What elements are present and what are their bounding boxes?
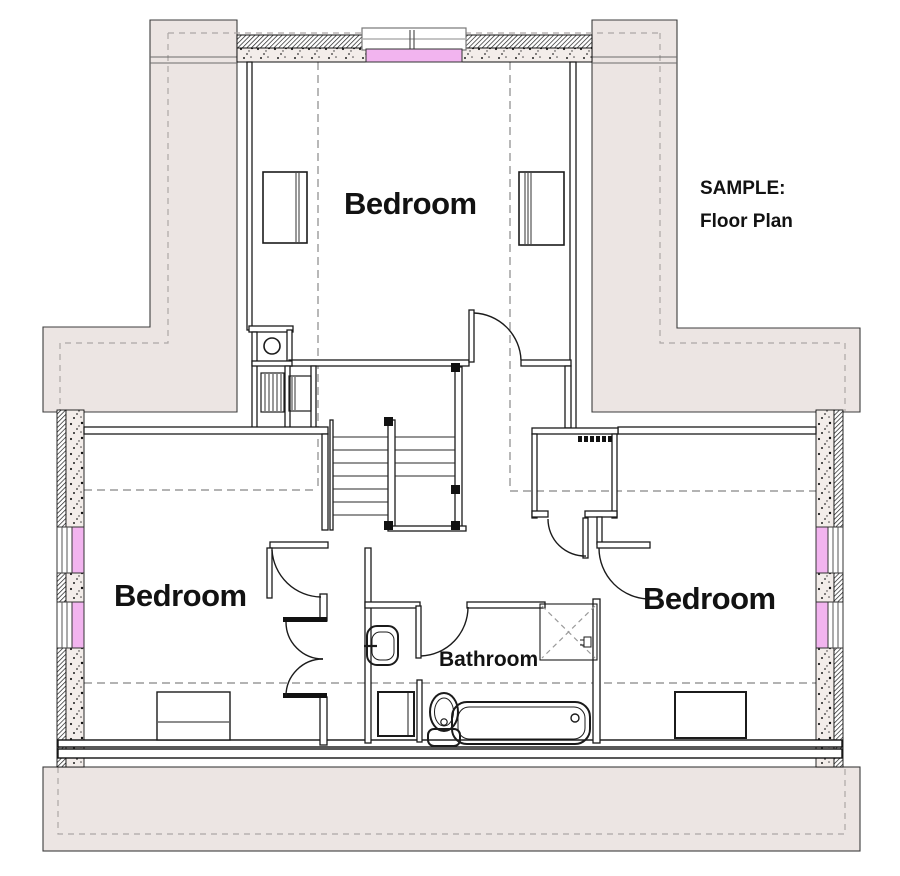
- dresser-top-right: [519, 172, 564, 245]
- wall-bathroom-stub: [417, 680, 422, 742]
- floor-plan-drawing: [0, 0, 900, 876]
- left-wall-hatch: [57, 410, 66, 767]
- dresser-left-bedroom: [157, 692, 230, 740]
- wall-utility-divider: [252, 361, 292, 366]
- wall-left-bedroom-stub-south: [320, 697, 327, 745]
- door-leaf-left-bedroom: [267, 548, 272, 598]
- bathtub-icon: [452, 702, 590, 744]
- stair-stringer-left: [330, 420, 333, 530]
- bottom-wall-outer: [58, 749, 842, 758]
- wall-stair-west: [322, 434, 328, 530]
- wall-bathroom-north-a: [365, 602, 420, 608]
- double-door-arc-upper: [286, 622, 323, 659]
- sample-annotation: SAMPLE: Floor Plan: [700, 172, 793, 238]
- wall-top-bedroom-south-b: [289, 360, 469, 366]
- wall-top-bedroom-south-c: [521, 360, 571, 366]
- right-wall-hatch: [834, 410, 843, 767]
- double-door-leaf-lower: [283, 693, 327, 698]
- wall-top-bedroom-west: [247, 62, 252, 330]
- door-arc-left-bedroom: [272, 550, 321, 597]
- wall-north-left: [84, 427, 328, 434]
- wall-north-right: [618, 427, 816, 434]
- wall-closet-north: [532, 428, 618, 434]
- wall-closet-west: [532, 434, 537, 518]
- roof-shade-bottom: [43, 767, 860, 851]
- window-right-upper: [816, 527, 843, 573]
- room-label-bedroom-left: Bedroom: [114, 578, 247, 614]
- wall-closet-east: [612, 434, 617, 518]
- room-label-bedroom-right: Bedroom: [643, 581, 776, 617]
- wall-bathroom-north-b: [467, 602, 545, 608]
- stair-rail-right: [455, 367, 462, 527]
- door-leaf-bathroom: [416, 606, 421, 658]
- desk-right-bedroom: [675, 692, 746, 738]
- right-wall-speckle: [816, 410, 834, 767]
- wall-left-bedroom-stub-mid: [320, 594, 327, 621]
- closet-shelf-marks: [578, 436, 612, 442]
- radiator-icon: [261, 373, 284, 412]
- stairs: [330, 363, 466, 531]
- window-left-lower: [57, 602, 84, 648]
- floor-plan: Bedroom Bedroom Bedroom Bathroom SAMPLE:…: [0, 0, 900, 876]
- dresser-top-left: [263, 172, 307, 243]
- wall-utility-east: [311, 366, 316, 428]
- wall-jamb: [597, 517, 602, 544]
- utility-basin-icon: [264, 338, 280, 354]
- utility-box-icon: [289, 376, 311, 411]
- wall-closet-south-b: [585, 511, 617, 517]
- bathroom-fixtures: [364, 604, 597, 746]
- sample-annotation-line1: SAMPLE:: [700, 172, 793, 205]
- door-leaf-closet: [583, 518, 588, 558]
- wall-left-bedroom-north: [270, 542, 328, 548]
- vanity-cabinet-icon: [378, 692, 414, 736]
- room-label-bedroom-top: Bedroom: [344, 186, 477, 222]
- wall-hall-east: [565, 366, 571, 428]
- sample-annotation-line2: Floor Plan: [700, 205, 793, 238]
- stair-rail-middle: [388, 420, 395, 527]
- shower-icon: [540, 604, 597, 660]
- double-door-arc-lower: [286, 659, 323, 696]
- window-right-lower: [816, 602, 843, 648]
- door-leaf-top-bedroom: [469, 310, 474, 362]
- wall-right-bedroom-doorhead: [597, 542, 650, 548]
- room-label-bathroom: Bathroom: [439, 648, 538, 672]
- left-wall-speckle: [66, 410, 84, 767]
- window-left-upper: [57, 527, 84, 573]
- wall-utility-west: [252, 332, 257, 432]
- window-top: [366, 49, 462, 62]
- door-arc-closet: [548, 519, 586, 556]
- double-door-leaf-upper: [283, 617, 327, 622]
- roof-shade-left: [43, 20, 237, 412]
- wall-closet-south-a: [532, 511, 548, 517]
- door-arc-top-bedroom: [474, 313, 521, 360]
